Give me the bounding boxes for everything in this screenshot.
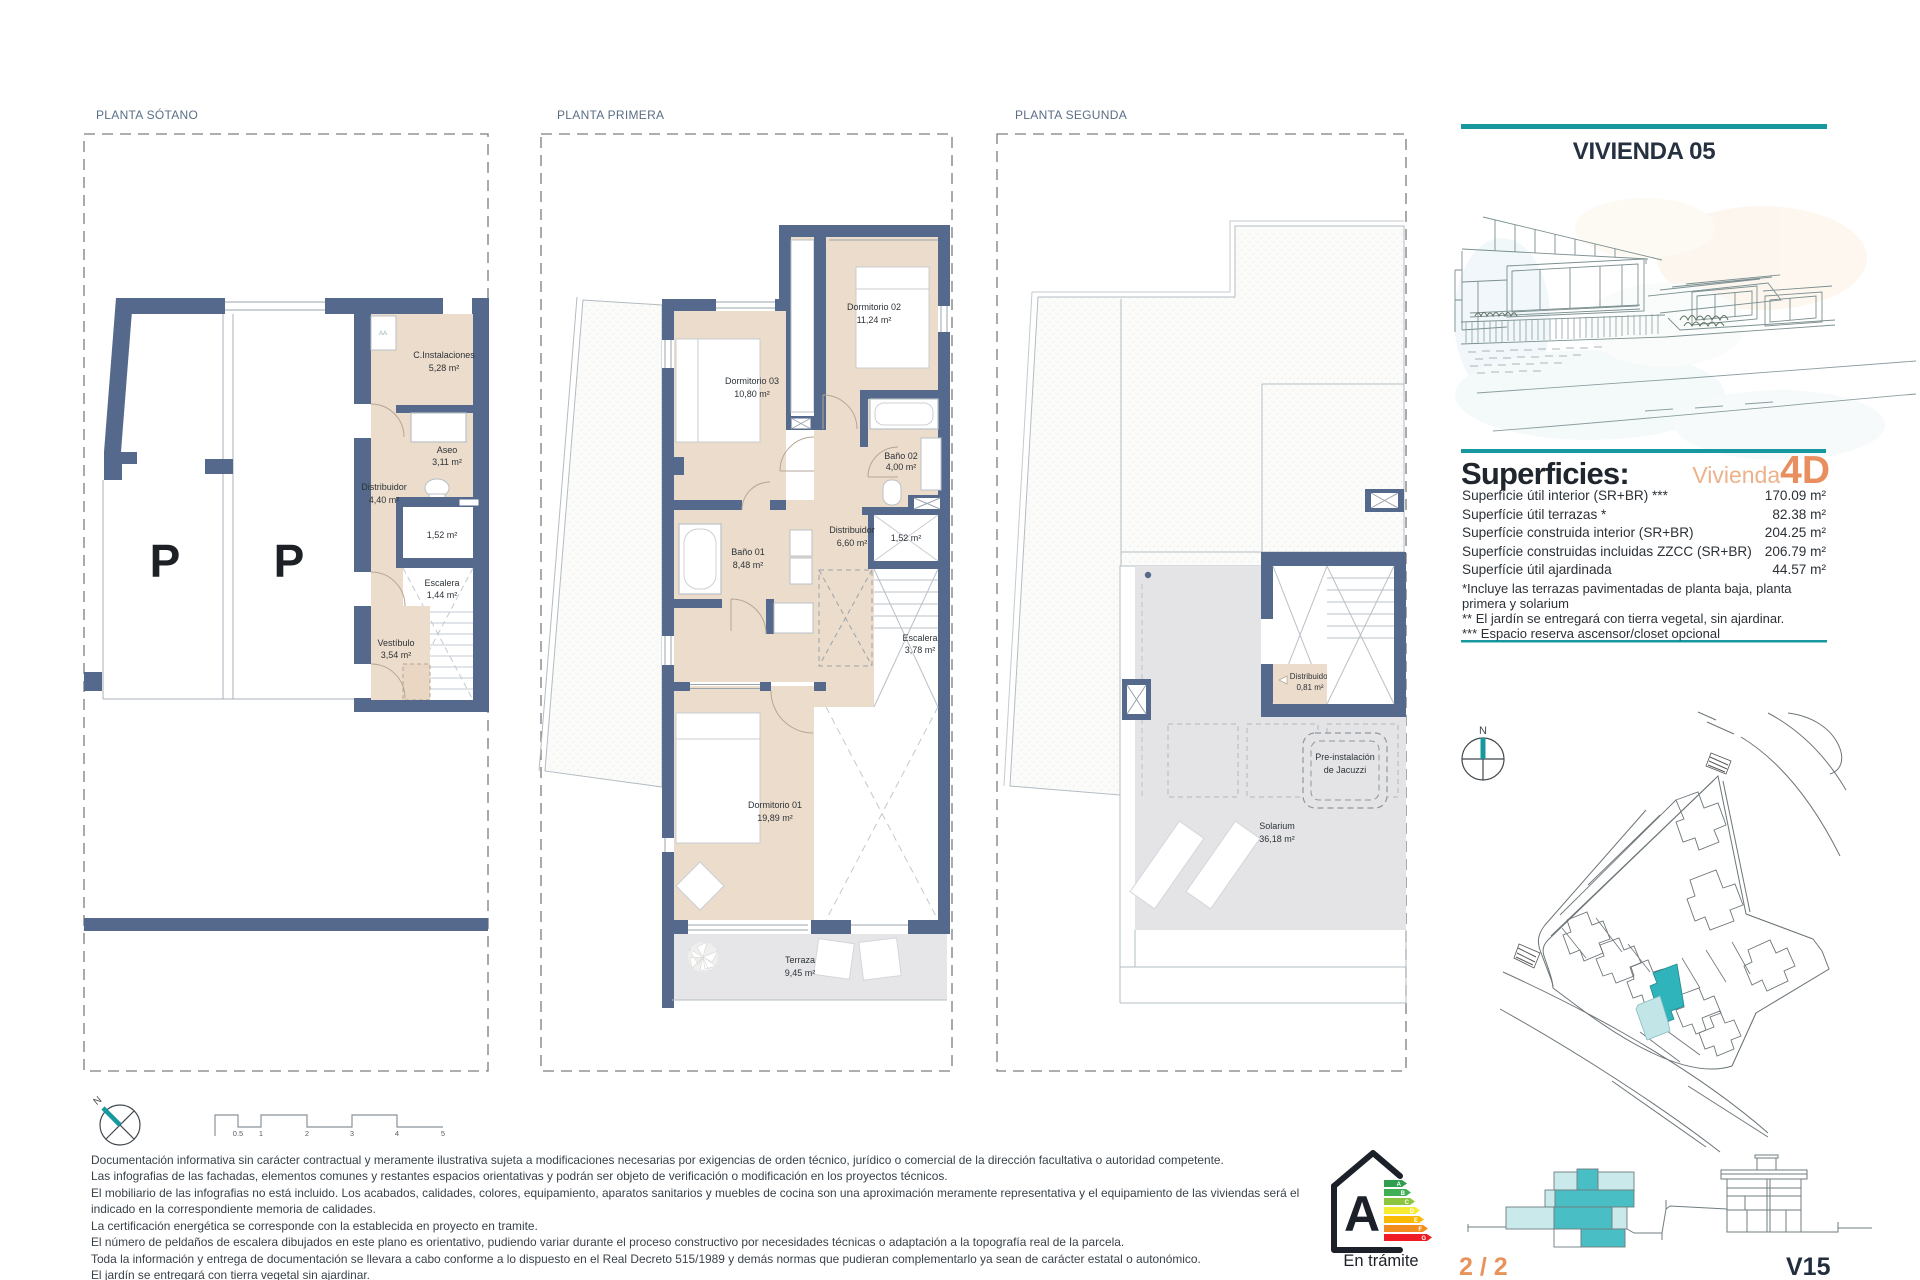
- svg-text:Vestíbulo: Vestíbulo: [377, 638, 414, 648]
- svg-text:9,45 m²: 9,45 m²: [785, 968, 816, 978]
- svg-text:Distribuidor: Distribuidor: [829, 525, 875, 535]
- svg-text:1,44 m²: 1,44 m²: [427, 590, 458, 600]
- svg-text:Baño 02: Baño 02: [884, 451, 918, 461]
- svg-text:36,18 m²: 36,18 m²: [1259, 834, 1295, 844]
- svg-text:Dormitorio 01: Dormitorio 01: [748, 800, 802, 810]
- svg-text:1,52 m²: 1,52 m²: [891, 533, 922, 543]
- svg-text:P: P: [150, 535, 181, 587]
- svg-text:1,52 m²: 1,52 m²: [427, 530, 458, 540]
- svg-text:F: F: [1418, 1227, 1422, 1233]
- svg-text:B: B: [1401, 1191, 1406, 1197]
- svg-text:19,89 m²: 19,89 m²: [757, 813, 793, 823]
- svg-text:3: 3: [350, 1129, 354, 1138]
- svg-text:3,11 m²: 3,11 m²: [432, 457, 462, 467]
- svg-text:AA: AA: [379, 331, 387, 337]
- svg-text:0.5: 0.5: [233, 1129, 243, 1138]
- svg-text:5: 5: [441, 1129, 445, 1138]
- svg-text:D: D: [1410, 1209, 1415, 1215]
- svg-text:Escalera: Escalera: [424, 578, 459, 588]
- svg-text:Dormitorio 03: Dormitorio 03: [725, 376, 779, 386]
- svg-text:C.Instalaciones: C.Instalaciones: [413, 350, 475, 360]
- svg-text:1: 1: [259, 1129, 263, 1138]
- svg-text:de Jacuzzi: de Jacuzzi: [1324, 765, 1367, 775]
- svg-text:0,81 m²: 0,81 m²: [1296, 683, 1323, 692]
- svg-text:11,24 m²: 11,24 m²: [857, 315, 892, 325]
- svg-text:5,28 m²: 5,28 m²: [429, 363, 460, 373]
- svg-text:N: N: [1479, 725, 1487, 737]
- svg-text:4: 4: [395, 1129, 399, 1138]
- svg-text:Pre-instalación: Pre-instalación: [1315, 752, 1375, 762]
- svg-text:6,60 m²: 6,60 m²: [837, 538, 868, 548]
- svg-text:Terraza: Terraza: [785, 955, 815, 965]
- svg-text:Distribuidor: Distribuidor: [1290, 672, 1331, 681]
- svg-text:Aseo: Aseo: [437, 445, 458, 455]
- svg-text:P: P: [274, 535, 305, 587]
- svg-text:8,48 m²: 8,48 m²: [733, 560, 764, 570]
- svg-text:10,80 m²: 10,80 m²: [734, 389, 770, 399]
- svg-text:E: E: [1414, 1218, 1418, 1224]
- svg-text:4,40 m²: 4,40 m²: [369, 495, 400, 505]
- svg-text:N: N: [92, 1095, 105, 1108]
- svg-text:Solarium: Solarium: [1259, 821, 1295, 831]
- svg-text:3,54 m²: 3,54 m²: [381, 650, 412, 660]
- svg-text:Escalera: Escalera: [902, 633, 937, 643]
- svg-text:Dormitorio 02: Dormitorio 02: [847, 302, 901, 312]
- svg-text:Distribuidor: Distribuidor: [361, 482, 407, 492]
- svg-text:2: 2: [305, 1129, 309, 1138]
- svg-text:4,00 m²: 4,00 m²: [886, 462, 917, 472]
- svg-text:3,78 m²: 3,78 m²: [905, 645, 936, 655]
- svg-text:C: C: [1405, 1200, 1410, 1206]
- svg-text:Baño 01: Baño 01: [731, 547, 765, 557]
- svg-text:A: A: [1397, 1182, 1402, 1188]
- svg-text:G: G: [1421, 1236, 1426, 1242]
